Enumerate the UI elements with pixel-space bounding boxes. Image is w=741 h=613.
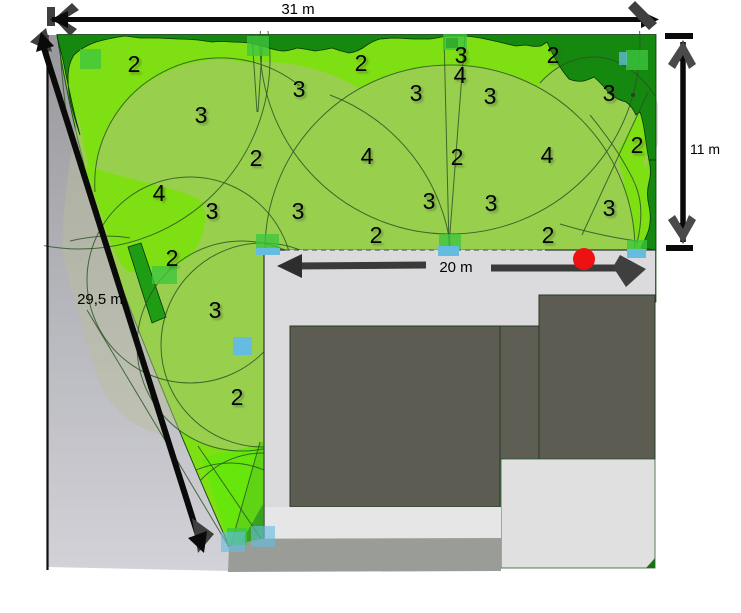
svg-text:3: 3 bbox=[209, 297, 222, 323]
svg-text:4: 4 bbox=[454, 62, 467, 88]
svg-text:2: 2 bbox=[451, 144, 464, 170]
svg-text:3: 3 bbox=[195, 102, 208, 128]
svg-text:2: 2 bbox=[631, 132, 644, 158]
svg-text:3: 3 bbox=[484, 83, 497, 109]
svg-text:3: 3 bbox=[292, 198, 305, 224]
svg-text:11 m: 11 m bbox=[690, 141, 720, 157]
svg-text:2: 2 bbox=[547, 42, 560, 68]
svg-text:2: 2 bbox=[166, 245, 179, 271]
svg-text:29,5 m: 29,5 m bbox=[77, 291, 123, 308]
svg-text:4: 4 bbox=[541, 142, 554, 168]
svg-text:3: 3 bbox=[410, 80, 423, 106]
svg-text:20 m: 20 m bbox=[439, 259, 472, 276]
svg-text:2: 2 bbox=[355, 50, 368, 76]
svg-text:2: 2 bbox=[231, 384, 244, 410]
svg-text:2: 2 bbox=[542, 222, 555, 248]
svg-text:4: 4 bbox=[361, 143, 374, 169]
svg-text:2: 2 bbox=[128, 51, 141, 77]
svg-text:3: 3 bbox=[603, 195, 616, 221]
svg-text:3: 3 bbox=[423, 188, 436, 214]
svg-text:4: 4 bbox=[153, 180, 166, 206]
svg-text:2: 2 bbox=[250, 145, 263, 171]
svg-text:3: 3 bbox=[206, 198, 219, 224]
svg-text:3: 3 bbox=[485, 190, 498, 216]
svg-text:3: 3 bbox=[293, 76, 306, 102]
svg-text:2: 2 bbox=[370, 222, 383, 248]
svg-text:3: 3 bbox=[603, 80, 616, 106]
svg-text:31 m: 31 m bbox=[281, 1, 314, 18]
